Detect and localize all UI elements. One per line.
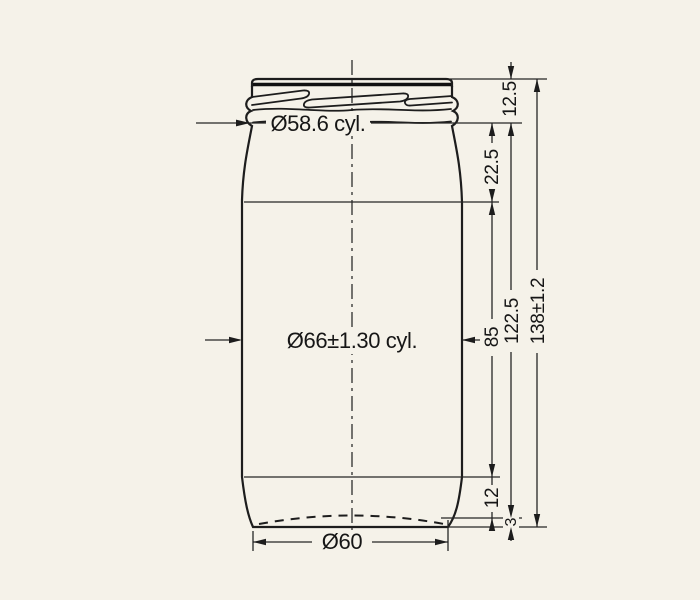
arrow-body-dia-left — [229, 337, 242, 343]
arrow-shoulder-dim-top — [489, 123, 495, 136]
arrow-body-dim-top — [489, 202, 495, 215]
arrow-base-dia-left — [253, 539, 266, 545]
arrow-overall-bottom — [534, 514, 540, 527]
arrow-finish-top — [508, 66, 514, 79]
neck-diameter-label: Ø58.6 cyl. — [270, 111, 365, 136]
shoulder-height-label: 22.5 — [482, 149, 503, 185]
base-diameter-label: Ø60 — [322, 529, 363, 554]
thread-segment-middle — [304, 93, 408, 107]
thread-segment-right — [405, 96, 452, 106]
base-height-label: 3 — [503, 517, 520, 526]
arrow-shoulder-dim-bottom — [489, 189, 495, 202]
thread-segment-left — [252, 90, 309, 105]
body-diameter-label: Ø66±1.30 cyl. — [287, 328, 417, 353]
arrow-body-dia-right — [462, 337, 475, 343]
arrow-body-dim-bottom — [489, 464, 495, 477]
arrow-overall-top — [534, 79, 540, 92]
arrow-heel-dim-bottom — [489, 518, 495, 531]
overall-height-label: 138±1.2 — [528, 278, 549, 344]
body-height-label: 85 — [482, 327, 503, 348]
jar-drawing: Ø58.6 cyl. Ø66±1.30 cyl. Ø60 12.5 22.5 8… — [0, 0, 700, 600]
arrowheads — [229, 66, 540, 545]
finish-height-label: 12.5 — [500, 81, 521, 117]
arrow-base-dia-right — [435, 539, 448, 545]
heel-height-label: 12 — [482, 488, 503, 509]
neck-to-base-height-label: 122.5 — [502, 298, 523, 344]
arrow-neckbase-chain — [508, 123, 514, 136]
technical-drawing-canvas: Ø58.6 cyl. Ø66±1.30 cyl. Ø60 12.5 22.5 8… — [0, 0, 700, 600]
